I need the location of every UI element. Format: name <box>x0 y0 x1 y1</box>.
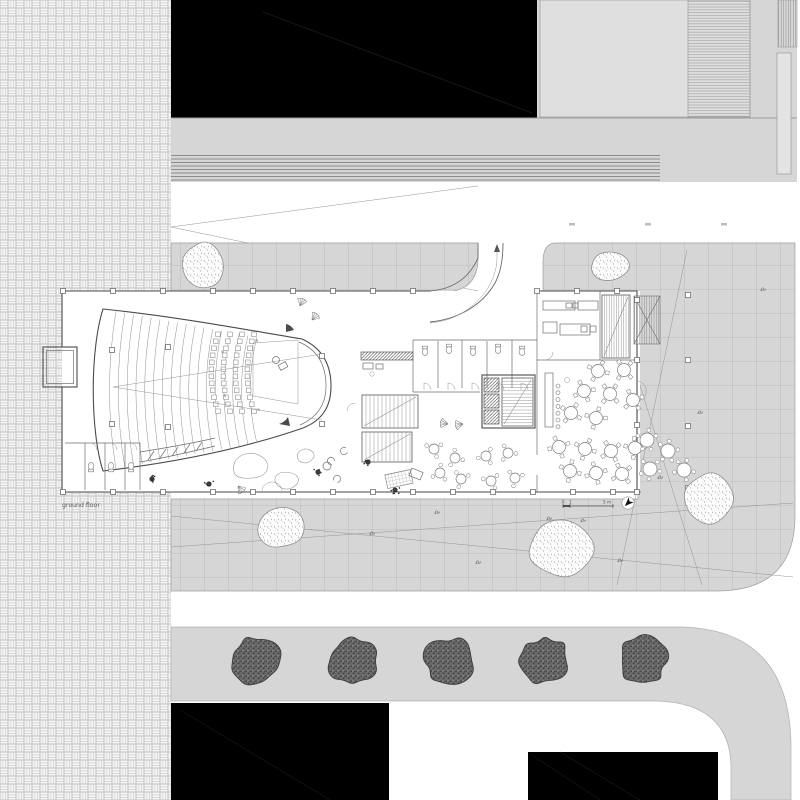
site-plan: wwww <box>0 0 800 800</box>
neighbor-building-roof-hatch <box>688 0 750 117</box>
elevator-shafts <box>484 378 499 424</box>
scale-five: 5 m <box>603 500 611 506</box>
fence-strip <box>777 53 791 174</box>
striped-strip <box>778 0 797 47</box>
scale-zero: 0 <box>562 500 565 506</box>
scale-one: 1 <box>569 500 572 506</box>
north-building-massing <box>171 0 537 118</box>
floor-label: ground floor <box>62 502 100 509</box>
north-arrow-icon <box>622 497 634 509</box>
